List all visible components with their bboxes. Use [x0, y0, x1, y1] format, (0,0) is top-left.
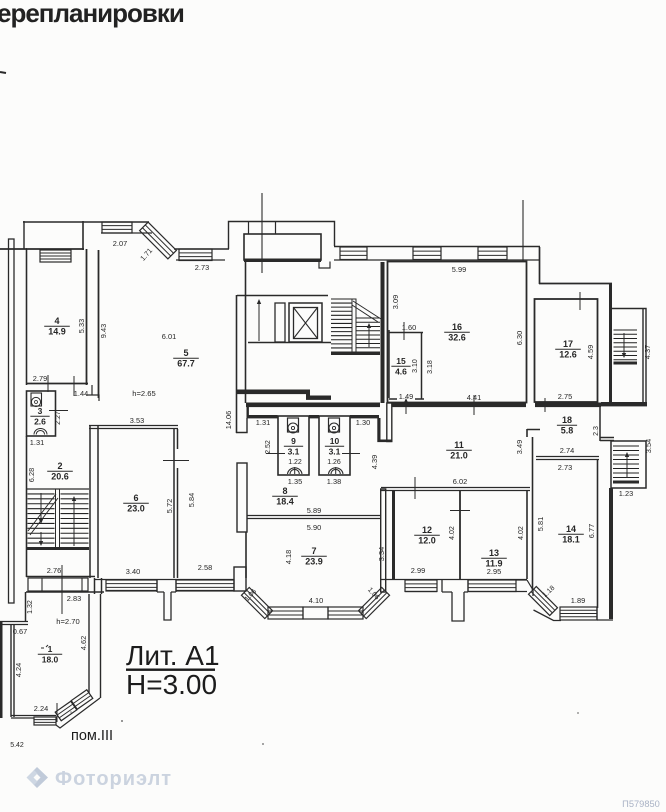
svg-text:2.58: 2.58: [198, 563, 212, 572]
svg-text:7: 7: [311, 546, 316, 556]
svg-text:18.0: 18.0: [42, 655, 59, 665]
svg-text:1.44: 1.44: [74, 389, 88, 398]
svg-text:3.34: 3.34: [377, 547, 386, 561]
svg-text:6.77: 6.77: [587, 524, 596, 538]
svg-text:20.6: 20.6: [51, 472, 69, 482]
svg-text:3.53: 3.53: [130, 416, 144, 425]
svg-text:6.28: 6.28: [27, 468, 36, 482]
svg-text:18: 18: [562, 415, 572, 425]
svg-text:14.9: 14.9: [48, 327, 66, 337]
svg-text:15: 15: [396, 356, 406, 366]
svg-text:2.3: 2.3: [593, 426, 600, 436]
svg-text:2.27: 2.27: [55, 411, 62, 425]
svg-text:2.74: 2.74: [560, 446, 574, 455]
svg-text:5: 5: [183, 348, 188, 358]
svg-text:3.49: 3.49: [515, 440, 524, 454]
svg-text:2.24: 2.24: [34, 704, 48, 713]
svg-text:1.89: 1.89: [571, 596, 585, 605]
svg-text:1.35: 1.35: [288, 477, 302, 486]
svg-text:1.26: 1.26: [327, 459, 341, 466]
svg-text:5.42: 5.42: [10, 742, 24, 749]
svg-text:3: 3: [38, 406, 43, 416]
svg-text:0.67: 0.67: [13, 627, 27, 636]
svg-text:h=2.65: h=2.65: [132, 389, 155, 398]
svg-text:1.32: 1.32: [27, 600, 34, 614]
svg-text:3.1: 3.1: [288, 447, 300, 457]
svg-text:13: 13: [489, 548, 499, 558]
svg-text:1.23: 1.23: [619, 489, 633, 498]
svg-text:4.02: 4.02: [449, 526, 456, 540]
svg-text:Фоториэлт: Фоториэлт: [55, 768, 172, 790]
svg-text:6.02: 6.02: [453, 477, 467, 486]
svg-text:Лит. А1: Лит. А1: [126, 640, 220, 671]
svg-text:2: 2: [57, 461, 62, 471]
svg-text:6.30: 6.30: [515, 331, 524, 345]
svg-text:2.73: 2.73: [195, 263, 209, 272]
svg-text:Н=3.00: Н=3.00: [126, 669, 217, 700]
svg-text:4.02: 4.02: [518, 526, 525, 540]
svg-text:23.9: 23.9: [305, 557, 323, 567]
svg-text:12.0: 12.0: [418, 536, 436, 546]
svg-text:4.10: 4.10: [309, 596, 323, 605]
svg-text:4.6: 4.6: [395, 367, 407, 377]
svg-text:3.09: 3.09: [391, 295, 400, 309]
svg-text:2.83: 2.83: [67, 594, 81, 603]
svg-text:2.52: 2.52: [265, 440, 272, 454]
svg-text:6: 6: [133, 493, 138, 503]
svg-text:5.84: 5.84: [187, 493, 196, 507]
svg-text:2.79: 2.79: [33, 374, 47, 383]
svg-text:ерепланировки: ерепланировки: [0, 0, 184, 28]
svg-text:5.81: 5.81: [536, 517, 545, 531]
svg-text:2.73: 2.73: [558, 463, 572, 472]
svg-text:4.18: 4.18: [284, 550, 293, 564]
svg-text:9.43: 9.43: [99, 324, 108, 338]
svg-text:2.99: 2.99: [411, 566, 425, 575]
svg-text:3.10: 3.10: [412, 359, 419, 373]
svg-text:18.4: 18.4: [276, 497, 294, 507]
svg-text:12: 12: [422, 525, 432, 535]
svg-text:4.59: 4.59: [586, 345, 595, 359]
svg-text:10: 10: [330, 436, 340, 446]
svg-text:2.75: 2.75: [558, 392, 572, 401]
svg-text:3.18: 3.18: [427, 360, 434, 374]
svg-text:5.90: 5.90: [307, 523, 321, 532]
svg-text:3.40: 3.40: [126, 567, 140, 576]
svg-text:5.33: 5.33: [77, 319, 86, 333]
svg-text:16: 16: [452, 322, 462, 332]
svg-text:4: 4: [54, 316, 59, 326]
svg-text:23.0: 23.0: [127, 504, 145, 514]
svg-text:2.95: 2.95: [487, 567, 501, 576]
svg-text:2.76: 2.76: [47, 566, 61, 575]
svg-text:1.22: 1.22: [288, 459, 302, 466]
svg-text:1.31: 1.31: [256, 418, 270, 427]
svg-text:5.99: 5.99: [452, 265, 466, 274]
svg-text:1.38: 1.38: [327, 477, 341, 486]
svg-text:5.89: 5.89: [307, 506, 321, 515]
svg-text:8: 8: [282, 486, 287, 496]
svg-text:1: 1: [48, 644, 53, 654]
svg-text:4.39: 4.39: [370, 455, 379, 469]
svg-text:4.62: 4.62: [79, 636, 88, 650]
svg-text:67.7: 67.7: [177, 359, 195, 369]
svg-text:1.30: 1.30: [356, 418, 370, 427]
svg-text:5.72: 5.72: [165, 499, 174, 513]
svg-text:12.6: 12.6: [559, 350, 577, 360]
svg-text:6.01: 6.01: [162, 332, 176, 341]
svg-text:2.07: 2.07: [113, 239, 127, 248]
svg-text:h=2.70: h=2.70: [56, 617, 79, 626]
svg-text:17: 17: [563, 339, 573, 349]
svg-text:П579850: П579850: [622, 799, 660, 809]
svg-text:4.37: 4.37: [643, 345, 652, 359]
svg-text:32.6: 32.6: [448, 333, 466, 343]
svg-text:5.8: 5.8: [561, 426, 574, 436]
svg-text:14.06: 14.06: [224, 411, 233, 430]
svg-text:21.0: 21.0: [450, 451, 468, 461]
svg-text:1.31: 1.31: [30, 438, 44, 447]
svg-text:11: 11: [454, 440, 464, 450]
svg-text:пом.III: пом.III: [71, 728, 113, 744]
svg-text:3.1: 3.1: [329, 447, 341, 457]
svg-text:9: 9: [291, 436, 296, 446]
svg-text:14: 14: [566, 524, 576, 534]
svg-text:4.24: 4.24: [14, 663, 23, 677]
svg-text:2.6: 2.6: [34, 417, 46, 427]
svg-text:18.1: 18.1: [562, 535, 580, 545]
svg-text:3.54: 3.54: [644, 439, 653, 453]
